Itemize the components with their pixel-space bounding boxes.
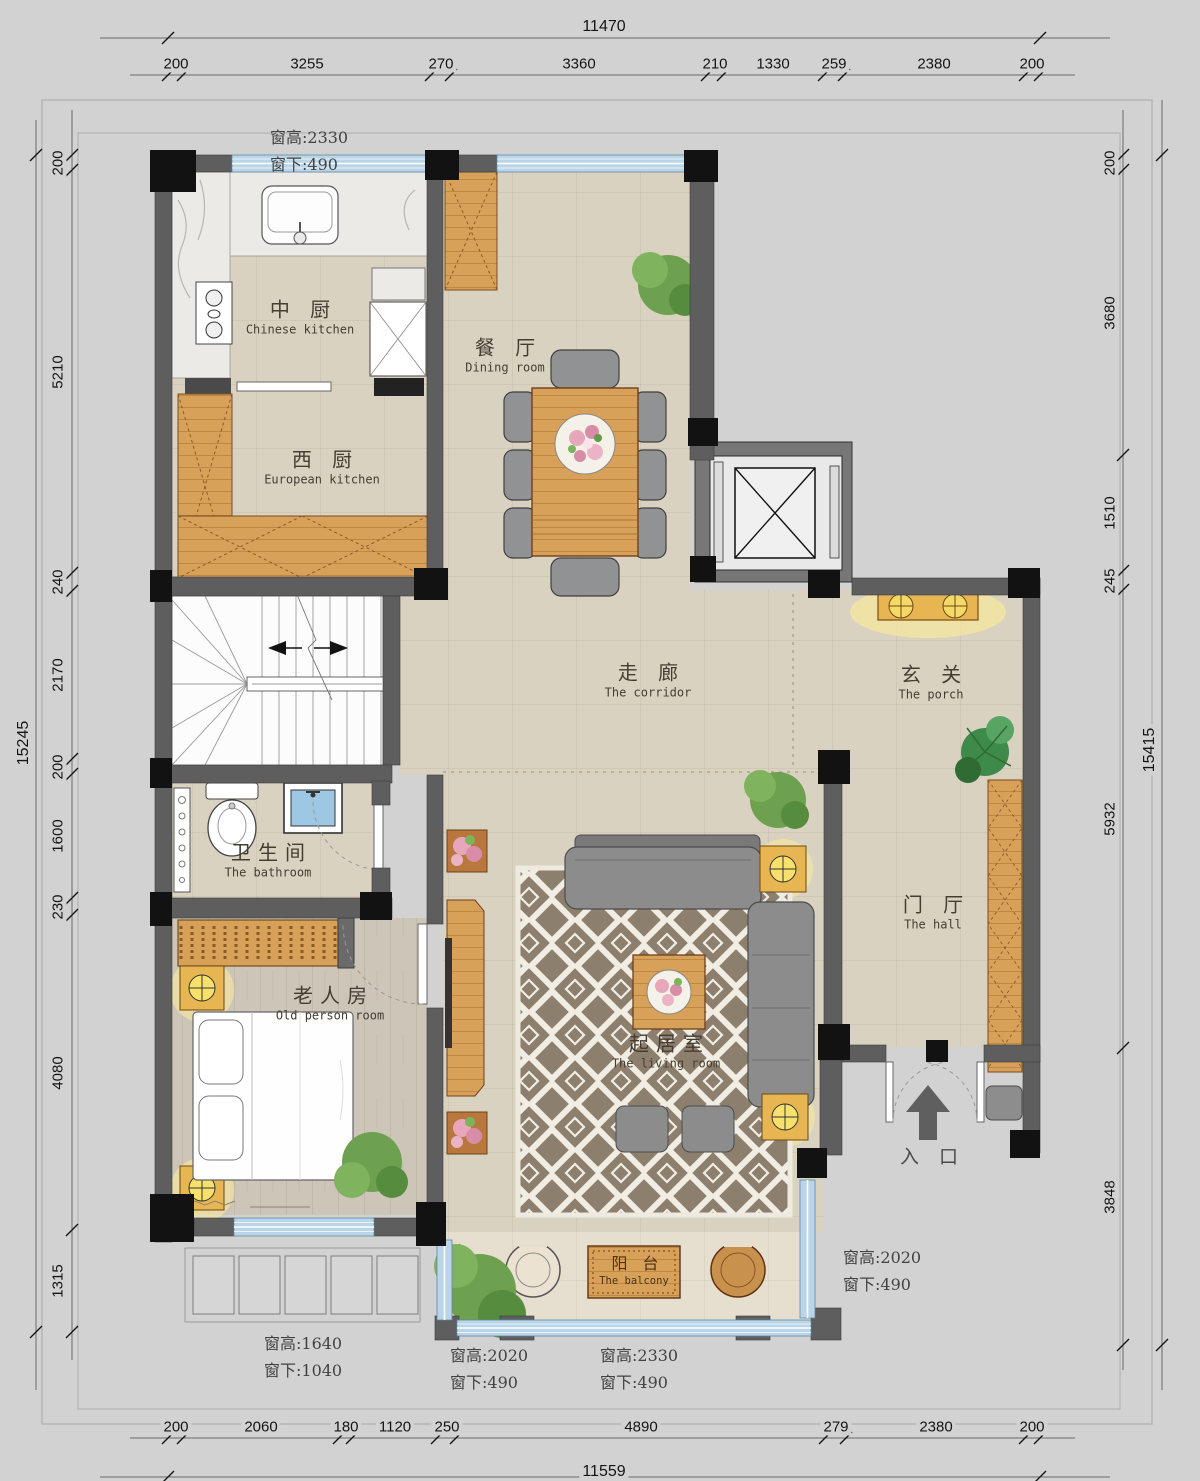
room-zh: 走 廊 xyxy=(605,662,692,685)
room-zh: 中 厨 xyxy=(246,299,354,322)
room-en: The corridor xyxy=(605,687,692,701)
dim-top-6: 1330 xyxy=(753,56,792,73)
dim-left-4: 2170 xyxy=(50,655,67,694)
dim-left-5: 200 xyxy=(50,751,67,782)
dim-bottom-2: 2060 xyxy=(241,1419,280,1436)
dim-left-9: 1315 xyxy=(50,1261,67,1300)
dim-left-7: 230 xyxy=(50,891,67,922)
room-zh: 起居室 xyxy=(612,1033,720,1056)
dim-bottom-1: 200 xyxy=(160,1419,191,1436)
room-zh: 入 口 xyxy=(893,1147,965,1169)
window-note-line: 窗下:490 xyxy=(600,1369,678,1396)
room-en: Old person room xyxy=(276,1010,384,1024)
dim-top-1: 200 xyxy=(160,56,191,73)
dim-top-total: 11470 xyxy=(579,18,628,36)
dim-top-9: 200 xyxy=(1016,56,1047,73)
room-label-old-person-room: 老人房 Old person room xyxy=(276,985,384,1024)
room-label-balcony: 阳 台 The balcony xyxy=(599,1255,669,1287)
dim-top-8: 2380 xyxy=(914,56,953,73)
dim-bottom-total: 11559 xyxy=(579,1463,628,1481)
dim-bottom-7: 279 xyxy=(820,1419,851,1436)
window-note-balcony-left: 窗高:2020 窗下:490 xyxy=(450,1342,528,1396)
room-en: The living room xyxy=(612,1058,720,1072)
elevator xyxy=(695,442,852,582)
room-en: Chinese kitchen xyxy=(246,324,354,338)
window-note-line: 窗高:1640 xyxy=(264,1330,342,1357)
window-note-line: 窗高:2020 xyxy=(843,1244,921,1271)
dim-top-5: 210 xyxy=(699,56,730,73)
window-note-balcony-mid: 窗高:2330 窗下:490 xyxy=(600,1342,678,1396)
room-label-living-room: 起居室 The living room xyxy=(612,1033,720,1072)
window-note-line: 窗高:2330 xyxy=(600,1342,678,1369)
room-label-chinese-kitchen: 中 厨 Chinese kitchen xyxy=(246,299,354,338)
dim-bottom-9: 200 xyxy=(1016,1419,1047,1436)
window-note-line: 窗下:490 xyxy=(450,1369,528,1396)
room-en: The hall xyxy=(896,919,970,933)
room-zh: 老人房 xyxy=(276,985,384,1008)
dim-top-4: 3360 xyxy=(559,56,598,73)
dim-left-3: 240 xyxy=(50,566,67,597)
room-en: The bathroom xyxy=(224,867,312,881)
room-en: The porch xyxy=(894,689,968,703)
room-zh: 阳 台 xyxy=(599,1255,669,1273)
room-zh: 玄 关 xyxy=(894,664,968,687)
window-note-right: 窗高:2020 窗下:490 xyxy=(843,1244,921,1298)
room-zh: 卫生间 xyxy=(224,842,312,865)
dim-bottom-5: 250 xyxy=(431,1419,462,1436)
dim-top-2: 3255 xyxy=(287,56,326,73)
dim-right-2: 3680 xyxy=(1102,293,1119,332)
dim-left-6: 1600 xyxy=(50,816,67,855)
entrance-arrow-icon xyxy=(906,1085,950,1140)
dim-left-1: 200 xyxy=(50,147,67,178)
room-label-dining: 餐 厅 Dining room xyxy=(465,337,544,376)
dim-bottom-3: 180 xyxy=(330,1419,361,1436)
dim-right-5: 5932 xyxy=(1102,799,1119,838)
dim-bottom-4: 1120 xyxy=(376,1419,414,1436)
floor-plan-page: 11470 200 3255 270 3360 210 1330 259 238… xyxy=(0,0,1200,1481)
dim-left-total: 15245 xyxy=(15,718,33,769)
dim-right-4: 245 xyxy=(1102,565,1119,596)
dim-bottom-6: 4890 xyxy=(621,1419,660,1436)
window-note-line: 窗高:2330 xyxy=(270,124,348,151)
room-label-european-kitchen: 西 厨 European kitchen xyxy=(264,449,380,488)
dim-right-1: 200 xyxy=(1102,147,1119,178)
dim-bottom-8: 2380 xyxy=(916,1419,955,1436)
room-en: European kitchen xyxy=(264,474,380,488)
window-note-line: 窗下:490 xyxy=(270,151,348,178)
dim-left-2: 5210 xyxy=(50,352,67,391)
room-zh: 西 厨 xyxy=(264,449,380,472)
dim-right-3: 1510 xyxy=(1102,493,1119,532)
dim-right-total: 15415 xyxy=(1141,725,1159,776)
room-label-hall: 门 厅 The hall xyxy=(896,894,970,933)
room-label-corridor: 走 廊 The corridor xyxy=(605,662,692,701)
window-note-line: 窗下:1040 xyxy=(264,1357,342,1384)
room-zh: 餐 厅 xyxy=(465,337,544,360)
dim-left-8: 4080 xyxy=(50,1053,67,1092)
room-en: Dining room xyxy=(465,362,544,376)
room-label-porch: 玄 关 The porch xyxy=(894,664,968,703)
window-note-line: 窗高:2020 xyxy=(450,1342,528,1369)
dim-right-6: 3848 xyxy=(1102,1177,1119,1216)
window-note-top-left: 窗高:2330 窗下:490 xyxy=(270,124,348,178)
window-note-line: 窗下:490 xyxy=(843,1271,921,1298)
room-en: The balcony xyxy=(599,1275,669,1287)
dim-top-3: 270 xyxy=(425,56,456,73)
planter-grid xyxy=(185,1248,420,1322)
room-label-bathroom: 卫生间 The bathroom xyxy=(224,842,312,881)
room-zh: 门 厅 xyxy=(896,894,970,917)
dim-top-7: 259 xyxy=(818,56,849,73)
room-label-entrance: 入 口 xyxy=(893,1147,965,1169)
window-note-bottom-left: 窗高:1640 窗下:1040 xyxy=(264,1330,342,1384)
